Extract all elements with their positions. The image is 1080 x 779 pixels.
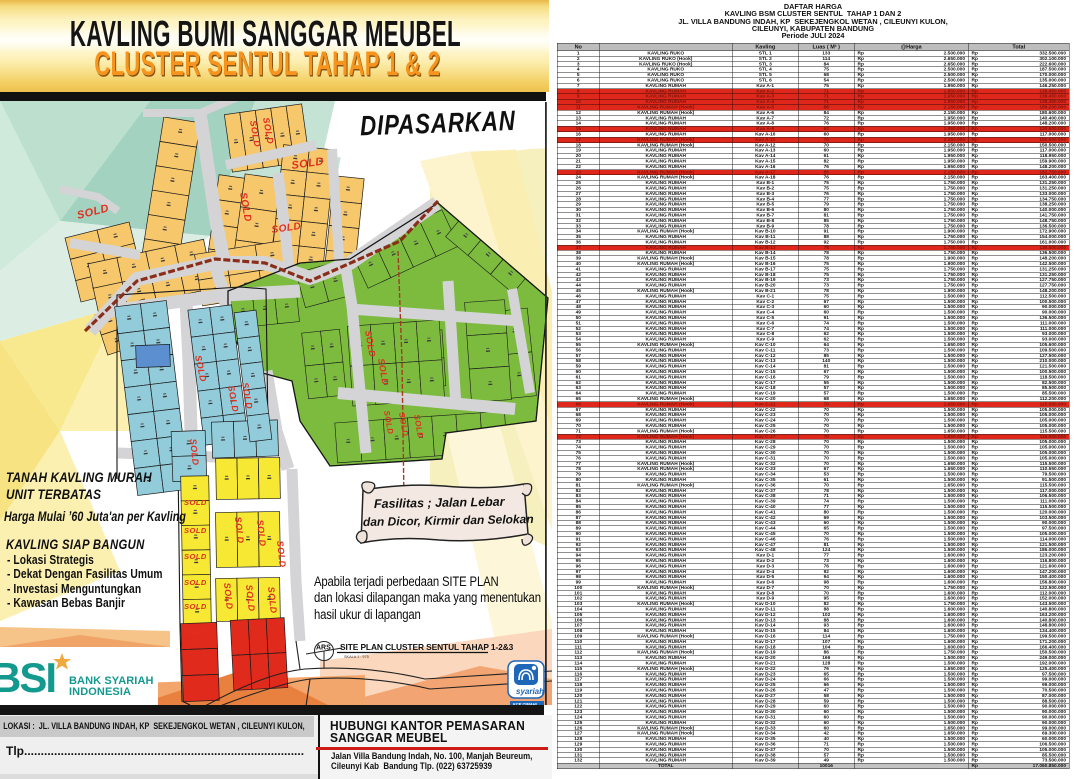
svg-text:SOLD: SOLD: [184, 552, 207, 561]
svg-text:SKALA 1 : 975: SKALA 1 : 975: [344, 655, 369, 659]
svg-text:SOLD: SOLD: [184, 578, 207, 587]
svg-text:dan Dicor, Kirmir dan Selokan: dan Dicor, Kirmir dan Selokan: [363, 512, 534, 529]
svg-text:SOLD: SOLD: [184, 626, 207, 635]
svg-text:SOLD: SOLD: [184, 602, 207, 611]
svg-text:Fasilitas ; Jalan Lebar: Fasilitas ; Jalan Lebar: [374, 495, 506, 511]
svg-text:SOLD: SOLD: [184, 498, 207, 507]
svg-text:SITE PLAN CLUSTER SENTUL TAHAP: SITE PLAN CLUSTER SENTUL TAHAP 1-2&3: [340, 642, 514, 652]
svg-text:syariah: syariah: [516, 687, 544, 696]
svg-text:ARS: ARS: [316, 645, 331, 652]
svg-text:SOLD: SOLD: [184, 526, 207, 535]
